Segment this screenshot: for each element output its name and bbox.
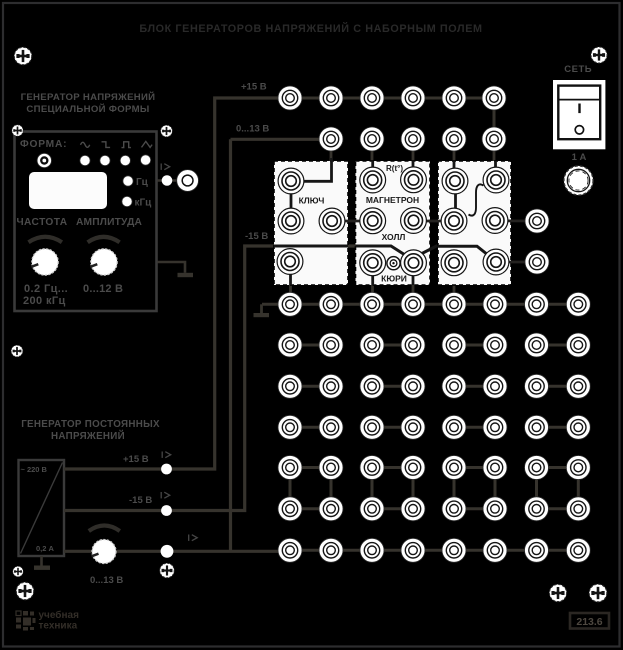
svg-text:200 кГц: 200 кГц [23,295,66,307]
svg-text:ГЕНЕРАТОР НАПРЯЖЕНИЙ: ГЕНЕРАТОР НАПРЯЖЕНИЙ [21,91,156,103]
svg-text:0...13 В: 0...13 В [236,124,269,135]
svg-text:НАПРЯЖЕНИЙ: НАПРЯЖЕНИЙ [51,430,125,442]
svg-text:Гц: Гц [136,177,149,188]
svg-text:КЮРИ: КЮРИ [381,274,407,284]
svg-text:+15 В: +15 В [123,454,149,465]
svg-text:0...13 В: 0...13 В [90,575,123,586]
svg-text:учебная: учебная [39,609,80,621]
svg-text:0...12 В: 0...12 В [83,283,123,295]
svg-text:0,2 А: 0,2 А [36,544,55,553]
svg-text:СЕТЬ: СЕТЬ [564,64,592,75]
svg-text:-15 В: -15 В [129,495,152,506]
svg-text:R(t°): R(t°) [386,164,403,173]
svg-text:кГц: кГц [135,198,153,209]
svg-text:+15 В: +15 В [241,82,267,93]
svg-text:~ 220 В: ~ 220 В [21,465,48,474]
svg-text:АМПЛИТУДА: АМПЛИТУДА [76,217,143,228]
svg-text:-15 В: -15 В [245,231,268,242]
svg-text:ГЕНЕРАТОР ПОСТОЯННЫХ: ГЕНЕРАТОР ПОСТОЯННЫХ [21,419,160,430]
svg-text:БЛОК ГЕНЕРАТОРОВ НАПРЯЖЕНИЙ С: БЛОК ГЕНЕРАТОРОВ НАПРЯЖЕНИЙ С НАБОРНЫМ П… [139,22,482,35]
svg-text:МАГНЕТРОН: МАГНЕТРОН [366,195,419,205]
svg-text:КЛЮЧ: КЛЮЧ [299,196,325,206]
svg-text:ФОРМА:: ФОРМА: [20,139,67,150]
svg-text:ХОЛЛ: ХОЛЛ [382,232,406,242]
svg-text:1 А: 1 А [572,152,587,163]
svg-text:0.2 Гц...: 0.2 Гц... [24,283,68,295]
svg-text:ЧАСТОТА: ЧАСТОТА [17,217,68,228]
svg-text:техника: техника [39,621,78,632]
svg-text:СПЕЦИАЛЬНОЙ ФОРМЫ: СПЕЦИАЛЬНОЙ ФОРМЫ [26,103,149,115]
svg-text:213.6: 213.6 [576,616,602,628]
